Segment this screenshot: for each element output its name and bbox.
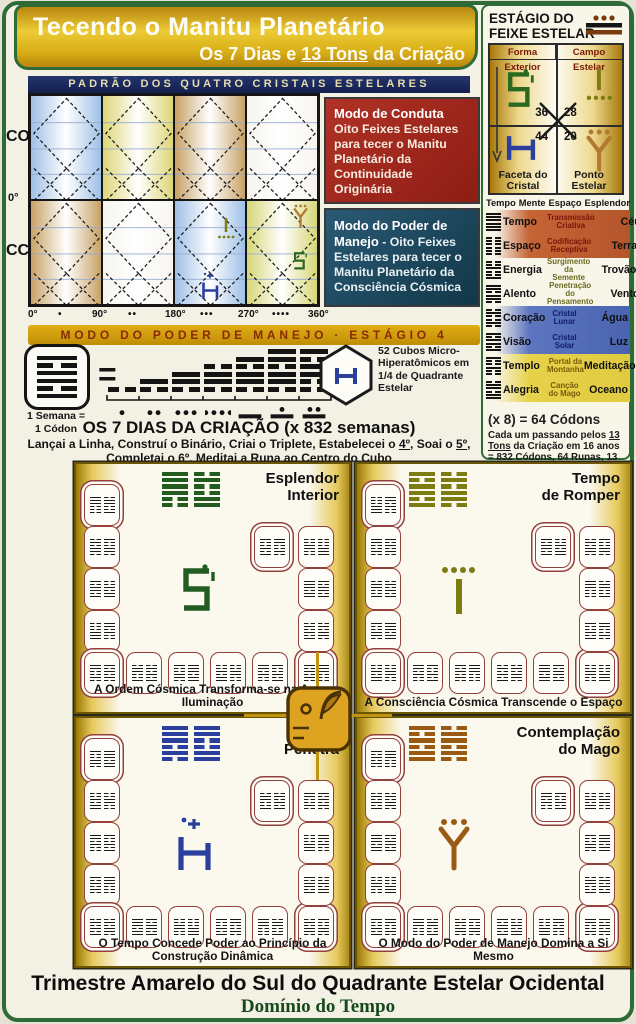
hexagram-icon — [140, 379, 168, 392]
diamond-lattice-icon — [103, 201, 174, 305]
row-element: Água — [582, 312, 630, 324]
hexagram-icon — [385, 793, 396, 810]
hexagram-icon — [90, 835, 101, 852]
diamond-lattice-icon — [31, 201, 102, 305]
quadrant-caption: A Consciência Cósmica Transcende o Espaç… — [363, 696, 624, 709]
row-element: Oceano — [582, 384, 630, 396]
row-name: Alento — [503, 288, 547, 300]
large-codon-pair — [409, 472, 467, 507]
quadrant-caption: O Modo do Poder de Manejo Domina a Si Me… — [363, 937, 624, 963]
codon-tile — [365, 484, 401, 526]
hexagram-icon — [497, 919, 508, 936]
hexagram-icon — [258, 665, 269, 682]
hexagram-icon — [146, 665, 157, 682]
pattern-cell — [102, 95, 174, 200]
hexagram-icon — [304, 581, 315, 598]
pattern-grid — [28, 93, 320, 307]
row-element: Trovão — [590, 264, 636, 276]
large-codon-pair — [162, 726, 220, 761]
rune-penetra-icon — [199, 271, 221, 301]
hexagram-icon — [318, 877, 329, 894]
hexagram-icon — [104, 835, 115, 852]
hexagram-icon — [486, 285, 501, 303]
row-label-cc: CC — [6, 242, 29, 260]
hexagram-icon — [599, 793, 610, 810]
hexagram-icon — [385, 497, 396, 514]
axis-tick: 360° — [308, 309, 329, 320]
codons-total: (x 8) = 64 Códons — [488, 412, 600, 427]
hexagram-icon — [553, 665, 564, 682]
power-mode-text: Modo do Poder de Manejo - Oito Feixes Es… — [334, 218, 470, 295]
axis-dots: •• — [128, 309, 137, 320]
large-codon-pair — [409, 726, 467, 761]
quadrant-caption: O Tempo Concede Poder ao Princípio da Co… — [82, 937, 343, 963]
hexagram-icon — [511, 919, 522, 936]
stage-grid: Forma Exterior Campo Estelar 36 28 44 20… — [488, 43, 624, 195]
hexagram-icon — [585, 919, 596, 936]
rune-antenna-icon — [502, 131, 540, 165]
cubes-label: 52 Cubos Micro-Hiperatômicos em 1/4 de Q… — [378, 345, 482, 395]
hexagram-icon — [274, 539, 285, 556]
diamond-lattice-icon — [103, 96, 174, 200]
hexagram-icon — [385, 835, 396, 852]
hexagram-icon — [585, 665, 596, 682]
rune-campo-icon — [215, 215, 237, 245]
hexagram-icon — [104, 665, 115, 682]
faceta-cristal-label: Faceta do Cristal — [490, 170, 556, 192]
hexagram-icon — [230, 919, 241, 936]
seven-day-stacks — [106, 346, 332, 392]
hexagram-icon — [385, 665, 396, 682]
hexagram-icon — [90, 665, 101, 682]
hexagram-icon — [555, 793, 566, 810]
page-subtitle: Os 7 Dias e 13 Tons da Criação — [199, 44, 465, 65]
quadrant-panel: Tempode RomperA Consciência Cósmica Tran… — [355, 462, 632, 714]
hexagram-icon — [104, 751, 115, 768]
hexagram-icon — [90, 581, 101, 598]
hexagram-icon — [599, 835, 610, 852]
center-rune-icon — [172, 816, 216, 877]
rune-mago-icon — [433, 816, 477, 872]
hexagram-icon — [37, 356, 77, 399]
hexagram-icon — [385, 539, 396, 556]
rune-esplendor-icon — [291, 249, 309, 273]
center-rune-icon — [437, 562, 481, 623]
day-stack — [268, 349, 296, 392]
pattern-cell — [174, 200, 246, 305]
row-name: Espaço — [503, 240, 547, 252]
table-header: Espaço — [549, 198, 582, 208]
hexagram-icon — [304, 539, 315, 556]
quadrant-title: EsplendorInterior — [266, 471, 339, 505]
codon-tile — [254, 780, 290, 822]
codon-tile — [298, 568, 334, 610]
rune-mago-icon — [582, 127, 618, 173]
row-label-co: CO — [6, 128, 30, 146]
codon-tile — [579, 652, 615, 694]
seven-days-title: OS 7 DIAS DA CRIAÇÃO (x 832 semanas) — [18, 418, 480, 438]
hexagram-icon — [585, 835, 596, 852]
codon-tile — [365, 652, 401, 694]
rune-mago-icon — [291, 203, 311, 229]
hexagram-icon — [90, 497, 101, 514]
codon-tile — [298, 822, 334, 864]
hexagram-icon — [427, 665, 438, 682]
hexagram-icon — [304, 793, 315, 810]
hexagram-icon — [304, 877, 315, 894]
codon-tile — [84, 484, 120, 526]
hexagram-icon — [318, 665, 329, 682]
quadrant-panel: TempoPenetraO Tempo Concede Poder ao Pri… — [74, 716, 351, 968]
row-desc: Codificação Receptiva — [547, 238, 591, 254]
hexagram-icon — [174, 665, 185, 682]
hexagram-icon — [539, 919, 550, 936]
codon-tile — [84, 526, 120, 568]
rune-esplendor-icon — [176, 562, 220, 618]
codon-tile — [254, 526, 290, 568]
cell-rune-icon — [291, 203, 311, 234]
hexagram-icon — [486, 333, 501, 351]
row-desc: Penetração do Pensamento — [547, 282, 593, 306]
hexagram-icon — [455, 919, 466, 936]
hexagram-icon — [385, 623, 396, 640]
table-header: Mente — [519, 198, 546, 208]
axis-dots: •••• — [272, 309, 290, 320]
zero-marker: 0° — [8, 192, 19, 204]
codon-tile — [535, 526, 571, 568]
ponto-estelar-label: Ponto Estelar — [556, 170, 622, 192]
hexagram-icon — [409, 726, 435, 761]
hexagram-icon — [90, 793, 101, 810]
hexagram-icon — [104, 877, 115, 894]
codon-box-icon — [24, 344, 90, 410]
row-desc: Transmissão Criativa — [547, 214, 595, 230]
hexagram-icon — [318, 623, 329, 640]
hexagram-icon — [318, 581, 329, 598]
hexagram-icon — [104, 581, 115, 598]
quadrant-title-line: de Romper — [542, 488, 620, 505]
hexagram-icon — [272, 665, 283, 682]
stage-panel-title: ESTÁGIO DO FEIXE ESTELAR — [489, 11, 595, 41]
hexagram-icon — [585, 581, 596, 598]
hexagram-icon — [585, 793, 596, 810]
hexagram-icon — [268, 349, 296, 392]
hexagram-icon — [599, 919, 610, 936]
hexagram-icon — [90, 539, 101, 556]
page-title: Tecendo o Manitu Planetário — [33, 13, 385, 42]
hexagram-icon — [486, 357, 501, 375]
quadrant-title-line: Contemplação — [517, 725, 620, 742]
axis-tick: 180° — [165, 309, 186, 320]
degree-axis: 0°90°180°270°360°•••••••••• — [28, 309, 320, 323]
hexagram-icon — [216, 919, 227, 936]
codon-tile — [84, 610, 120, 652]
hexagram-icon — [132, 665, 143, 682]
pattern-cell — [174, 95, 246, 200]
hexagram-icon — [304, 665, 315, 682]
row-name: Coração — [503, 312, 547, 324]
quadrant-title: Contemplaçãodo Mago — [517, 725, 620, 759]
center-rune-icon — [433, 816, 477, 877]
hexagram-icon — [204, 364, 232, 392]
diamond-lattice-icon — [31, 96, 102, 200]
hexagram-icon — [260, 539, 271, 556]
pattern-cell — [246, 95, 318, 200]
footer-trimester: Trimestre Amarelo do Sul do Quadrante Es… — [0, 972, 636, 996]
day-stack — [172, 372, 200, 392]
hexagram-icon — [146, 919, 157, 936]
hexagram-icon — [104, 919, 115, 936]
row-name: Alegria — [503, 384, 547, 396]
hexagram-icon — [486, 213, 501, 231]
hexagram-icon — [371, 877, 382, 894]
conduct-mode-text: Oito Feixes Estelares para tecer o Manit… — [334, 122, 470, 197]
axis-tick: 0° — [28, 309, 38, 320]
table-row: EnergiaSurgimento da SementeTrovão — [486, 258, 630, 282]
rune-penetra-icon — [172, 816, 216, 872]
hexagram-icon — [469, 919, 480, 936]
hexagram-icon — [455, 665, 466, 682]
hexagram-icon — [585, 623, 596, 640]
hexagram-icon — [441, 472, 467, 507]
row-name: Visão — [503, 336, 547, 348]
table-row: TempoTransmissão CriativaCéu — [486, 210, 630, 234]
hexagram-icon — [371, 793, 382, 810]
row-desc: Portal da Montanha — [547, 358, 584, 374]
row-element: Vento — [593, 288, 636, 300]
codon-tile — [365, 568, 401, 610]
hexagram-icon — [304, 835, 315, 852]
hexagram-icon — [188, 665, 199, 682]
hexagram-icon — [585, 539, 596, 556]
hexagram-icon — [216, 665, 227, 682]
row-desc: Cristal Lunar — [547, 310, 582, 326]
row-name: Energia — [503, 264, 547, 276]
hexagram-icon — [385, 877, 396, 894]
cross-x-icon — [534, 97, 582, 145]
stage-panel: ESTÁGIO DO FEIXE ESTELAR Forma Exterior … — [481, 4, 631, 460]
forma-exterior-label: Forma Exterior — [490, 45, 556, 60]
hexagram-icon — [385, 581, 396, 598]
hexagram-icon — [441, 726, 467, 761]
hexagram-icon — [599, 623, 610, 640]
conduct-mode-box: Modo de Conduta Oito Feixes Estelares pa… — [324, 97, 480, 204]
quadrant-panel: Contemplaçãodo MagoO Modo do Poder de Ma… — [355, 716, 632, 968]
table-headers: TempoMenteEspaçoEsplendor — [486, 198, 630, 208]
row-name: Templo — [503, 360, 547, 372]
faceta-cristal-rune-icon — [502, 131, 540, 170]
day-stack — [204, 364, 232, 392]
hexagram-icon — [385, 919, 396, 936]
hexagram-icon — [371, 497, 382, 514]
pattern-cell — [102, 200, 174, 305]
hexagram-icon — [371, 581, 382, 598]
pattern-cell — [30, 200, 102, 305]
quadrant-title-line: Interior — [266, 488, 339, 505]
row-desc: Surgimento da Semente — [547, 258, 590, 282]
quadrant-title-line: do Mago — [517, 742, 620, 759]
day-stack — [140, 379, 168, 392]
hexagram-icon — [371, 665, 382, 682]
codon-tile — [365, 610, 401, 652]
forma-exterior-rune-icon — [502, 67, 538, 118]
hexagram-icon — [188, 919, 199, 936]
codon-tile — [84, 780, 120, 822]
hexagram-icon — [409, 472, 435, 507]
hexagram-icon — [258, 919, 269, 936]
hexagram-icon — [104, 623, 115, 640]
hexagram-icon — [174, 919, 185, 936]
codon-tile — [449, 652, 485, 694]
hexagram-icon — [274, 793, 285, 810]
down-arrow-icon — [492, 67, 502, 163]
hexagram-icon — [172, 372, 200, 392]
center-rune-icon — [176, 562, 220, 623]
power-mode-box: Modo do Poder de Manejo - Oito Feixes Es… — [324, 208, 480, 307]
codon-tile — [533, 652, 569, 694]
cube-hexagon-icon — [318, 344, 374, 411]
axis-tick: 270° — [238, 309, 259, 320]
diamond-lattice-icon — [175, 96, 246, 200]
codon-tile — [84, 822, 120, 864]
cell-rune-icon — [199, 271, 221, 305]
codon-tile — [579, 822, 615, 864]
codon-tile — [298, 780, 334, 822]
codon-tile — [579, 568, 615, 610]
hexagram-icon — [585, 877, 596, 894]
quadrant-title: Tempode Romper — [542, 471, 620, 505]
pattern-cell — [30, 95, 102, 200]
hexagram-icon — [511, 665, 522, 682]
bracket-icon — [106, 394, 332, 402]
axis-tick: 90° — [92, 309, 107, 320]
codon-tile — [407, 652, 443, 694]
campo-estelar-rune-icon — [582, 65, 616, 114]
hexagram-icon — [371, 539, 382, 556]
hexagram-icon — [469, 665, 480, 682]
hexagram-icon — [553, 919, 564, 936]
table-header: Tempo — [486, 198, 516, 208]
codon-tile — [579, 864, 615, 906]
row-name: Tempo — [503, 216, 547, 228]
rune-romper-icon — [437, 562, 481, 618]
quadrant-title-line: Tempo — [542, 471, 620, 488]
codon-tile — [579, 610, 615, 652]
codon-tile — [365, 738, 401, 780]
row-desc: Cristal Solar — [547, 334, 582, 350]
axis-dots: ••• — [200, 309, 214, 320]
codon-tile — [365, 526, 401, 568]
row-element: Luz — [582, 336, 630, 348]
hexagram-icon — [541, 793, 552, 810]
hexagram-icon — [90, 919, 101, 936]
hexagram-icon — [304, 919, 315, 936]
hexagram-icon — [318, 539, 329, 556]
codon-tile — [84, 738, 120, 780]
hexagram-icon — [162, 726, 188, 761]
hexagram-icon — [497, 665, 508, 682]
table-row: CoraçãoCristal LunarÁgua — [486, 306, 630, 330]
table-row: VisãoCristal SolarLuz — [486, 330, 630, 354]
hexagram-icon — [104, 539, 115, 556]
hexagram-icon — [90, 877, 101, 894]
hexagram-icon — [104, 497, 115, 514]
cell-rune-icon — [291, 249, 309, 278]
hexagram-icon — [486, 309, 501, 327]
header-banner: Tecendo o Manitu Planetário Os 7 Dias e … — [14, 4, 478, 70]
table-row: TemploPortal da MontanhaMeditação — [486, 354, 630, 378]
codon-table: TempoTransmissão CriativaCéuEspaçoCodifi… — [486, 210, 630, 402]
hexagram-icon — [486, 381, 501, 399]
rune-campo-icon — [582, 65, 616, 109]
campo-estelar-label: Campo Estelar — [556, 45, 622, 60]
table-header: Esplendor — [585, 198, 630, 208]
hexagram-icon — [599, 665, 610, 682]
hexagram-icon — [90, 623, 101, 640]
hexagram-icon — [318, 835, 329, 852]
table-row: AlegriaCanção do MagoOceano — [486, 378, 630, 402]
codon-tile — [84, 568, 120, 610]
hexagram-icon — [385, 751, 396, 768]
hexagram-icon — [90, 751, 101, 768]
hexagram-icon — [304, 623, 315, 640]
axis-dots: • — [58, 309, 63, 320]
hexagram-icon — [318, 793, 329, 810]
codon-tile — [365, 780, 401, 822]
codon-tile — [579, 780, 615, 822]
codon-tile — [535, 780, 571, 822]
row-element: Meditação — [584, 360, 632, 372]
beam-mayan-icon — [584, 14, 624, 38]
hexagram-icon — [318, 919, 329, 936]
codon-tile — [491, 652, 527, 694]
hexagram-icon — [236, 357, 264, 392]
pattern-chart-title: PADRÃO DOS QUATRO CRISTAIS ESTELARES — [28, 76, 470, 93]
quadrant-title-line: Esplendor — [266, 471, 339, 488]
codon-tile — [298, 610, 334, 652]
codon-equation: 1 Semana = 1 Códon = 52 Cubos Micro-Hipe… — [18, 342, 480, 470]
hexagram-icon — [541, 539, 552, 556]
codon-tile — [579, 526, 615, 568]
hexagram-icon — [194, 472, 220, 507]
diamond-lattice-icon — [247, 96, 318, 200]
hexagram-icon — [539, 665, 550, 682]
hexagram-icon — [486, 261, 501, 279]
hexagram-icon — [413, 665, 424, 682]
hexagram-icon — [486, 237, 501, 255]
hexagram-icon — [104, 793, 115, 810]
pattern-chart: PADRÃO DOS QUATRO CRISTAIS ESTELARES Mod… — [18, 76, 480, 344]
row-element: Terra — [591, 240, 636, 252]
row-element: Céu — [595, 216, 636, 228]
hexagram-icon — [132, 919, 143, 936]
hexagram-icon — [162, 472, 188, 507]
codon-tile — [365, 822, 401, 864]
table-row: AlentoPenetração do PensamentoVento — [486, 282, 630, 306]
hexagram-icon — [555, 539, 566, 556]
cell-rune-icon — [215, 215, 237, 250]
hexagram-icon — [599, 877, 610, 894]
hexagram-icon — [371, 623, 382, 640]
large-codon-pair — [162, 472, 220, 507]
codon-tile — [298, 864, 334, 906]
hexagram-icon — [371, 919, 382, 936]
day-stack — [108, 387, 136, 392]
hexagram-icon — [371, 835, 382, 852]
hexagram-icon — [108, 387, 136, 392]
codon-tile — [84, 864, 120, 906]
hexagram-icon — [194, 726, 220, 761]
